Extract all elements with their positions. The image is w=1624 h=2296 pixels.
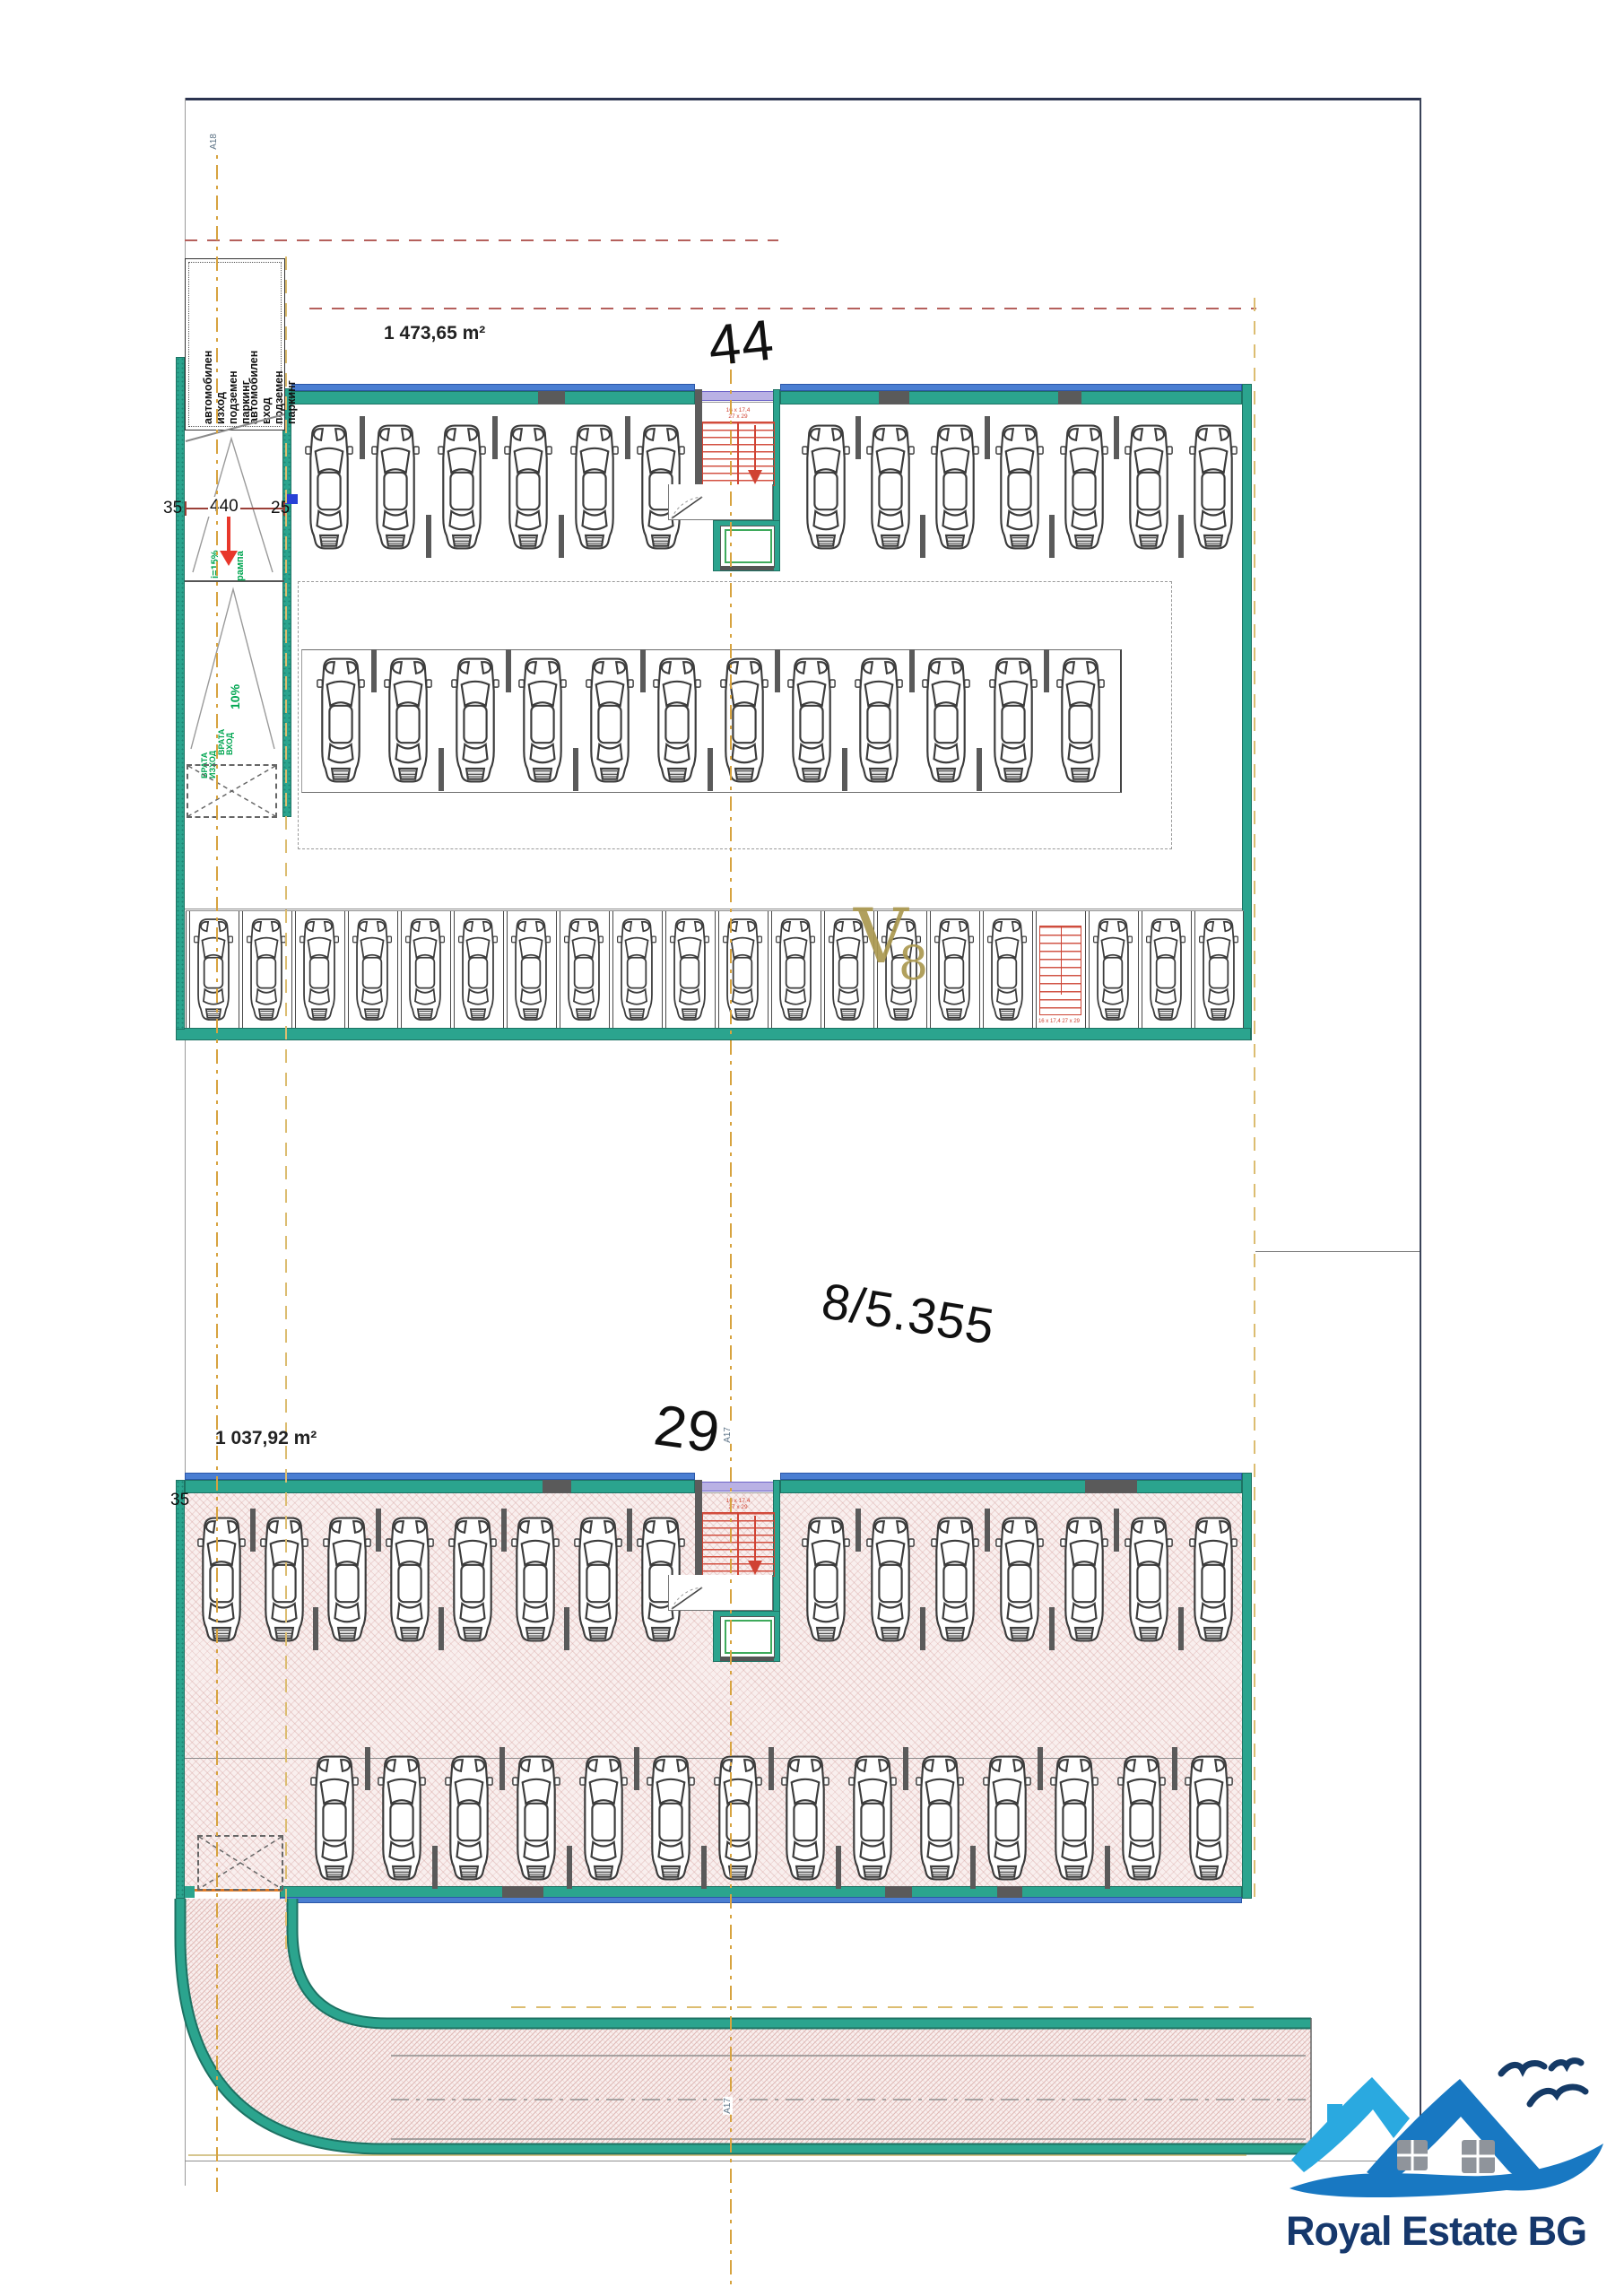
car-icon bbox=[438, 420, 486, 554]
parking-stall bbox=[556, 911, 609, 1028]
stall-divider-tick bbox=[439, 1607, 444, 1650]
stall-divider-tick bbox=[426, 515, 431, 558]
stall-divider-tick bbox=[365, 1747, 370, 1790]
stall-divider-tick bbox=[1178, 1607, 1184, 1650]
car-icon bbox=[310, 1751, 359, 1885]
stall-divider-tick bbox=[769, 1747, 774, 1790]
stair-core-landing-strip bbox=[701, 1482, 775, 1492]
stair-direction-arrow bbox=[743, 423, 767, 486]
stall-divider-tick bbox=[903, 1747, 908, 1790]
parking-stall: 16 x 17,4 27 x 29 bbox=[1032, 911, 1085, 1028]
car-icon bbox=[1189, 1512, 1238, 1647]
car-icon bbox=[317, 653, 365, 787]
car-icon bbox=[246, 917, 287, 1022]
car-icon bbox=[802, 1512, 850, 1647]
car-icon bbox=[1125, 420, 1173, 554]
car-icon bbox=[989, 653, 1038, 787]
stall-divider-tick bbox=[371, 649, 377, 692]
car-icon bbox=[802, 420, 850, 554]
parking-stall bbox=[397, 911, 450, 1028]
car-icon bbox=[714, 1751, 762, 1885]
car-icon bbox=[1050, 1751, 1099, 1885]
car-icon bbox=[1189, 420, 1238, 554]
logo-swoosh bbox=[1290, 2144, 1603, 2197]
watermark-8: 8 bbox=[899, 937, 928, 991]
stall-divider-tick bbox=[492, 416, 498, 459]
axis-horizontal-line bbox=[511, 2006, 1254, 2008]
car-icon bbox=[916, 1751, 964, 1885]
car-icon bbox=[848, 1751, 897, 1885]
stall-divider-tick bbox=[1114, 1509, 1119, 1552]
car-icon bbox=[445, 1751, 493, 1885]
car-icon bbox=[1117, 1751, 1166, 1885]
stall-divider-tick bbox=[567, 1846, 572, 1889]
car-icon bbox=[775, 917, 816, 1022]
car-icon bbox=[722, 917, 763, 1022]
car-icon bbox=[352, 917, 393, 1022]
stall-divider-tick bbox=[708, 748, 713, 791]
lower-spaces-count: 29 bbox=[650, 1391, 725, 1465]
stair-dimension-note: 16 x 17,4 27 x 29 bbox=[704, 1498, 772, 1510]
car-icon bbox=[563, 917, 604, 1022]
car-icon bbox=[1092, 917, 1133, 1022]
stall-divider-tick bbox=[1105, 1846, 1110, 1889]
car-icon bbox=[1185, 1751, 1233, 1885]
upper-area-label: 1 473,65 m² bbox=[384, 323, 485, 344]
car-icon bbox=[653, 653, 701, 787]
parking-floor-plan-sheet: автомобилен изход подземен паркинг автом… bbox=[0, 0, 1624, 2296]
car-icon bbox=[299, 917, 340, 1022]
logo-text: Royal Estate BG bbox=[1286, 2208, 1616, 2255]
stall-divider-tick bbox=[1049, 1607, 1055, 1650]
stair-flight-divider bbox=[737, 1512, 739, 1575]
stall-divider-tick bbox=[842, 748, 847, 791]
car-icon bbox=[451, 653, 499, 787]
stall-divider-tick bbox=[1172, 1747, 1177, 1790]
stall-divider-tick bbox=[625, 416, 630, 459]
stall-divider-tick bbox=[501, 1509, 507, 1552]
parking-stall bbox=[291, 911, 344, 1028]
stair-direction-arrow bbox=[743, 1514, 767, 1577]
car-icon bbox=[323, 1512, 371, 1647]
car-icon bbox=[511, 1512, 560, 1647]
stall-divider-tick bbox=[634, 1747, 639, 1790]
car-icon bbox=[448, 1512, 497, 1647]
stair-flight-divider bbox=[737, 422, 739, 484]
vehicles-layer: 16 x 17,4 27 x 29 16 x 17,4 27 x 29 bbox=[0, 0, 1624, 2296]
stall-divider-tick bbox=[775, 649, 780, 692]
car-icon bbox=[855, 653, 903, 787]
logo-window-right bbox=[1462, 2140, 1495, 2173]
stall-divider-tick bbox=[250, 1509, 256, 1552]
elevator-sill bbox=[720, 1657, 774, 1661]
car-icon bbox=[983, 1751, 1031, 1885]
car-icon bbox=[1198, 917, 1239, 1022]
stair-core-landing-strip bbox=[701, 391, 775, 401]
car-icon bbox=[781, 1751, 829, 1885]
stall-divider-tick bbox=[627, 1509, 632, 1552]
car-icon bbox=[1125, 1512, 1173, 1647]
stair-dimension-note: 16 x 17,4 27 x 29 bbox=[704, 407, 772, 420]
car-icon bbox=[193, 917, 234, 1022]
car-icon bbox=[995, 1512, 1044, 1647]
car-icon bbox=[570, 420, 619, 554]
car-icon bbox=[720, 653, 769, 787]
car-icon bbox=[1145, 917, 1186, 1022]
car-icon bbox=[386, 1512, 434, 1647]
parking-stall bbox=[715, 911, 768, 1028]
car-icon bbox=[1056, 653, 1105, 787]
parking-stall bbox=[979, 911, 1032, 1028]
stair-core: 16 x 17,4 27 x 29 bbox=[668, 1478, 780, 1662]
stall-divider-tick bbox=[439, 748, 444, 791]
stall-divider-tick bbox=[559, 515, 564, 558]
parking-stall bbox=[1138, 911, 1191, 1028]
car-icon bbox=[922, 653, 970, 787]
car-icon bbox=[616, 917, 657, 1022]
car-icon bbox=[510, 917, 551, 1022]
royal-estate-logo: Royal Estate BG bbox=[1284, 2054, 1618, 2278]
axis-secondary-line bbox=[285, 257, 287, 1955]
stall-divider-tick bbox=[970, 1846, 976, 1889]
stall-divider-tick bbox=[640, 649, 646, 692]
parking-stall-row: 16 x 17,4 27 x 29 bbox=[186, 910, 1244, 1028]
parking-stall bbox=[503, 911, 556, 1028]
stall-divider-tick bbox=[1038, 1747, 1043, 1790]
logo-window-left bbox=[1397, 2140, 1428, 2170]
car-icon bbox=[787, 653, 836, 787]
axis-a17-label: A17 bbox=[723, 1426, 733, 1444]
car-icon bbox=[378, 1751, 426, 1885]
parking-stall bbox=[662, 911, 715, 1028]
car-icon bbox=[457, 917, 499, 1022]
parking-stall bbox=[609, 911, 662, 1028]
stall-divider-tick bbox=[1178, 515, 1184, 558]
car-icon bbox=[647, 1751, 695, 1885]
stall-divider-tick bbox=[376, 1509, 381, 1552]
stall-divider-tick bbox=[977, 748, 982, 791]
parking-stall bbox=[926, 911, 979, 1028]
stall-divider-tick bbox=[573, 748, 578, 791]
stall-divider-tick bbox=[909, 649, 915, 692]
stall-divider-tick bbox=[701, 1846, 707, 1889]
car-icon bbox=[371, 420, 420, 554]
lower-area-label: 1 037,92 m² bbox=[215, 1428, 317, 1449]
stall-divider-tick bbox=[432, 1846, 438, 1889]
stall-divider-tick bbox=[985, 416, 990, 459]
stair-dimension-note: 16 x 17,4 27 x 29 bbox=[1033, 1019, 1085, 1024]
stall-divider-tick bbox=[1044, 649, 1049, 692]
parking-stall bbox=[344, 911, 397, 1028]
upper-spaces-count: 44 bbox=[705, 306, 777, 378]
stall-divider-tick bbox=[1049, 515, 1055, 558]
stall-divider-tick bbox=[855, 1509, 861, 1552]
axis-a17-label-bottom: A17 bbox=[723, 2097, 733, 2115]
logo-houses-graphic bbox=[1284, 2054, 1618, 2206]
car-icon bbox=[574, 1512, 622, 1647]
parking-stall bbox=[239, 911, 291, 1028]
car-icon bbox=[518, 653, 567, 787]
car-icon bbox=[305, 420, 353, 554]
axis-a17-line bbox=[730, 339, 732, 2291]
car-icon bbox=[504, 420, 552, 554]
emergency-stair bbox=[1039, 926, 1081, 1015]
stall-divider-tick bbox=[360, 416, 365, 459]
stair-core: 16 x 17,4 27 x 29 bbox=[668, 387, 780, 571]
car-icon bbox=[586, 653, 634, 787]
stair-flight-divider bbox=[1061, 926, 1063, 995]
car-icon bbox=[260, 1512, 308, 1647]
logo-birds bbox=[1501, 2061, 1585, 2104]
axis-a18-label: A18 bbox=[209, 133, 219, 151]
car-icon bbox=[1060, 420, 1108, 554]
car-icon bbox=[579, 1751, 628, 1885]
car-icon bbox=[384, 653, 432, 787]
parking-stall bbox=[1085, 911, 1138, 1028]
car-icon bbox=[934, 917, 975, 1022]
elevator-sill bbox=[720, 566, 774, 570]
car-icon bbox=[995, 420, 1044, 554]
stall-divider-tick bbox=[920, 1607, 925, 1650]
stall-divider-tick bbox=[836, 1846, 841, 1889]
stall-divider-tick bbox=[1114, 416, 1119, 459]
car-icon bbox=[931, 420, 979, 554]
car-icon bbox=[512, 1751, 560, 1885]
axis-a18-line bbox=[216, 135, 218, 2197]
car-icon bbox=[866, 420, 915, 554]
axis-right-line bbox=[1254, 298, 1255, 1901]
car-icon bbox=[404, 917, 446, 1022]
car-icon bbox=[866, 1512, 915, 1647]
door-swing bbox=[670, 486, 709, 520]
car-icon bbox=[986, 917, 1028, 1022]
stall-divider-tick bbox=[985, 1509, 990, 1552]
stall-divider-tick bbox=[506, 649, 511, 692]
stall-divider-tick bbox=[313, 1607, 318, 1650]
parking-stall bbox=[1191, 911, 1244, 1028]
door-swing bbox=[670, 1577, 709, 1611]
parking-stall bbox=[768, 911, 821, 1028]
stall-divider-tick bbox=[564, 1607, 569, 1650]
car-icon bbox=[1060, 1512, 1108, 1647]
stall-divider-tick bbox=[855, 416, 861, 459]
parking-stall bbox=[186, 911, 239, 1028]
stall-divider-tick bbox=[920, 515, 925, 558]
dim-35-lower: 35 bbox=[169, 1491, 191, 1510]
car-icon bbox=[197, 1512, 246, 1647]
car-icon bbox=[931, 1512, 979, 1647]
parking-stall bbox=[450, 911, 503, 1028]
car-icon bbox=[669, 917, 710, 1022]
stall-divider-tick bbox=[499, 1747, 505, 1790]
